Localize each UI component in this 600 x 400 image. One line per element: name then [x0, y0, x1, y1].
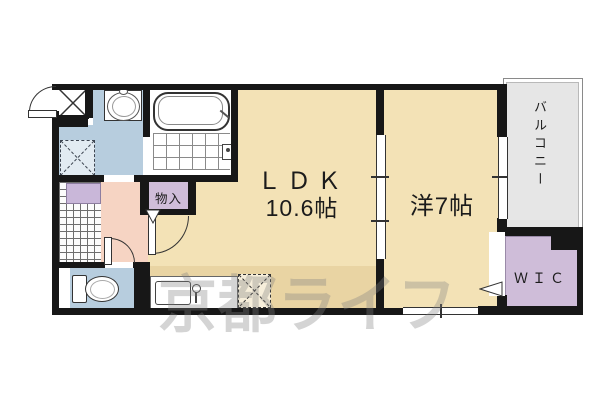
entrance-door-leaf — [28, 110, 57, 118]
room-ldk-label: ＬＤＫ 10.6帖 — [228, 169, 376, 222]
entrance-door-arc — [29, 86, 56, 112]
wash-basin-bowl-inner — [112, 96, 136, 117]
washing-machine-pan-cross-icon — [61, 141, 94, 175]
wall-western-right-top — [497, 84, 507, 137]
room-western-label: 洋7帖 — [384, 186, 500, 221]
bathroom-tile-floor — [153, 133, 230, 170]
shoe-cabinet — [66, 183, 101, 204]
watermark-text: 京都ライフ — [158, 254, 457, 344]
toilet-seat-line — [90, 280, 115, 299]
wall-bathroom-right — [231, 84, 238, 182]
bathtub-inner-rim — [158, 96, 223, 125]
storage-door-marker-icon — [145, 209, 161, 225]
balcony-label: バルコニー — [530, 100, 549, 230]
washroom-doorway — [104, 175, 134, 182]
storage-label: 物入 — [149, 188, 188, 207]
floor-plan: ＬＤＫ 10.6帖 洋7帖 バルコニー ＷＩＣ 物入 京都ライフ — [0, 0, 600, 400]
pipe-shaft-cross-icon — [59, 89, 87, 117]
wall-top — [52, 84, 507, 90]
wall-shaft-right — [85, 87, 93, 118]
room-ldk-name: ＬＤＫ — [228, 169, 376, 195]
wic-door-marker-icon — [479, 281, 503, 297]
wall-bathroom-left — [143, 84, 150, 137]
room-ldk-size: 10.6帖 — [228, 195, 376, 222]
window-western-balcony-tick — [492, 176, 508, 178]
wall-right — [577, 228, 583, 315]
wall-toilet-right — [134, 262, 150, 315]
bathroom-doorway — [143, 137, 150, 175]
wall-wic-notch — [551, 236, 577, 250]
wic-label: ＷＩＣ — [505, 268, 577, 288]
toilet-door-leaf — [104, 237, 112, 265]
shower-knob — [226, 148, 230, 152]
washing-machine-pan — [60, 140, 95, 176]
wall-bottom-right — [478, 306, 583, 315]
wall-divider-top — [376, 84, 384, 137]
wall-corner-bottom-right — [497, 295, 507, 315]
wall-under-shaft — [57, 115, 88, 127]
wall-bathroom-bottom — [143, 175, 238, 182]
